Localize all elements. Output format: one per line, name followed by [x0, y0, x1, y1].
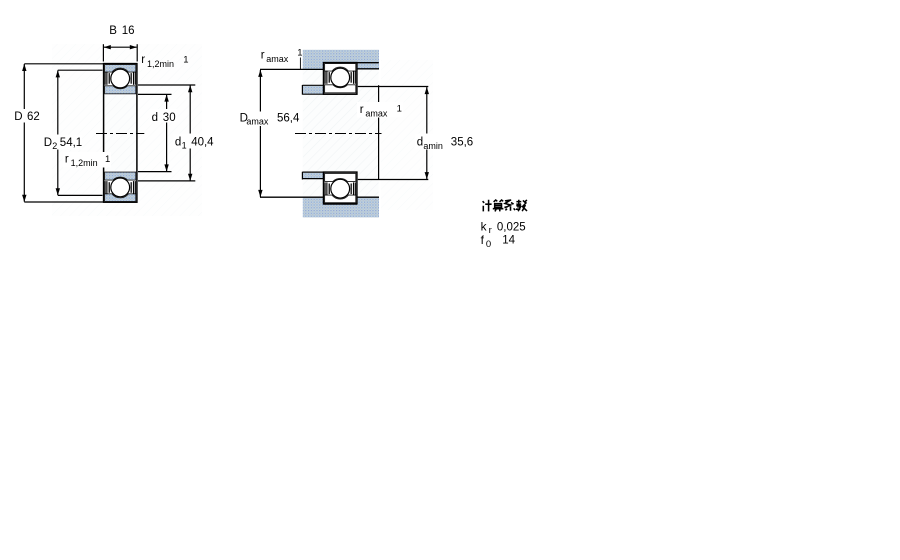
svg-text:amax: amax — [266, 54, 289, 64]
svg-text:2: 2 — [52, 141, 57, 151]
svg-text:1: 1 — [183, 55, 188, 66]
svg-text:1,2min: 1,2min — [147, 59, 174, 69]
svg-text:56,4: 56,4 — [277, 112, 300, 124]
svg-text:amax: amax — [246, 117, 269, 127]
svg-text:B: B — [109, 25, 117, 37]
svg-text:D: D — [14, 111, 22, 123]
svg-text:d: d — [175, 136, 181, 148]
svg-text:r: r — [489, 225, 492, 236]
svg-text:amax: amax — [365, 108, 388, 118]
svg-text:r: r — [141, 54, 145, 66]
svg-text:1,2min: 1,2min — [71, 158, 98, 168]
svg-text:amin: amin — [423, 141, 443, 151]
svg-text:54,1: 54,1 — [60, 137, 82, 149]
svg-text:d: d — [417, 137, 423, 149]
svg-text:f: f — [481, 233, 485, 247]
svg-text:r: r — [65, 154, 69, 166]
svg-text:40,4: 40,4 — [191, 136, 214, 148]
svg-text:16: 16 — [122, 25, 135, 37]
svg-text:k: k — [481, 220, 487, 234]
svg-text:1: 1 — [397, 104, 402, 115]
svg-text:r: r — [261, 50, 265, 62]
svg-text:d: d — [152, 112, 158, 124]
svg-text:r: r — [360, 104, 364, 116]
svg-text:0,025: 0,025 — [497, 222, 526, 234]
svg-text:14: 14 — [502, 235, 515, 247]
svg-text:0: 0 — [486, 239, 491, 250]
svg-text:35,6: 35,6 — [451, 137, 473, 149]
svg-text:62: 62 — [27, 111, 40, 123]
svg-text:1: 1 — [182, 140, 187, 150]
svg-text:1: 1 — [297, 47, 302, 58]
svg-text:30: 30 — [163, 112, 176, 124]
svg-text:1: 1 — [105, 154, 110, 165]
svg-text:D: D — [44, 137, 52, 149]
